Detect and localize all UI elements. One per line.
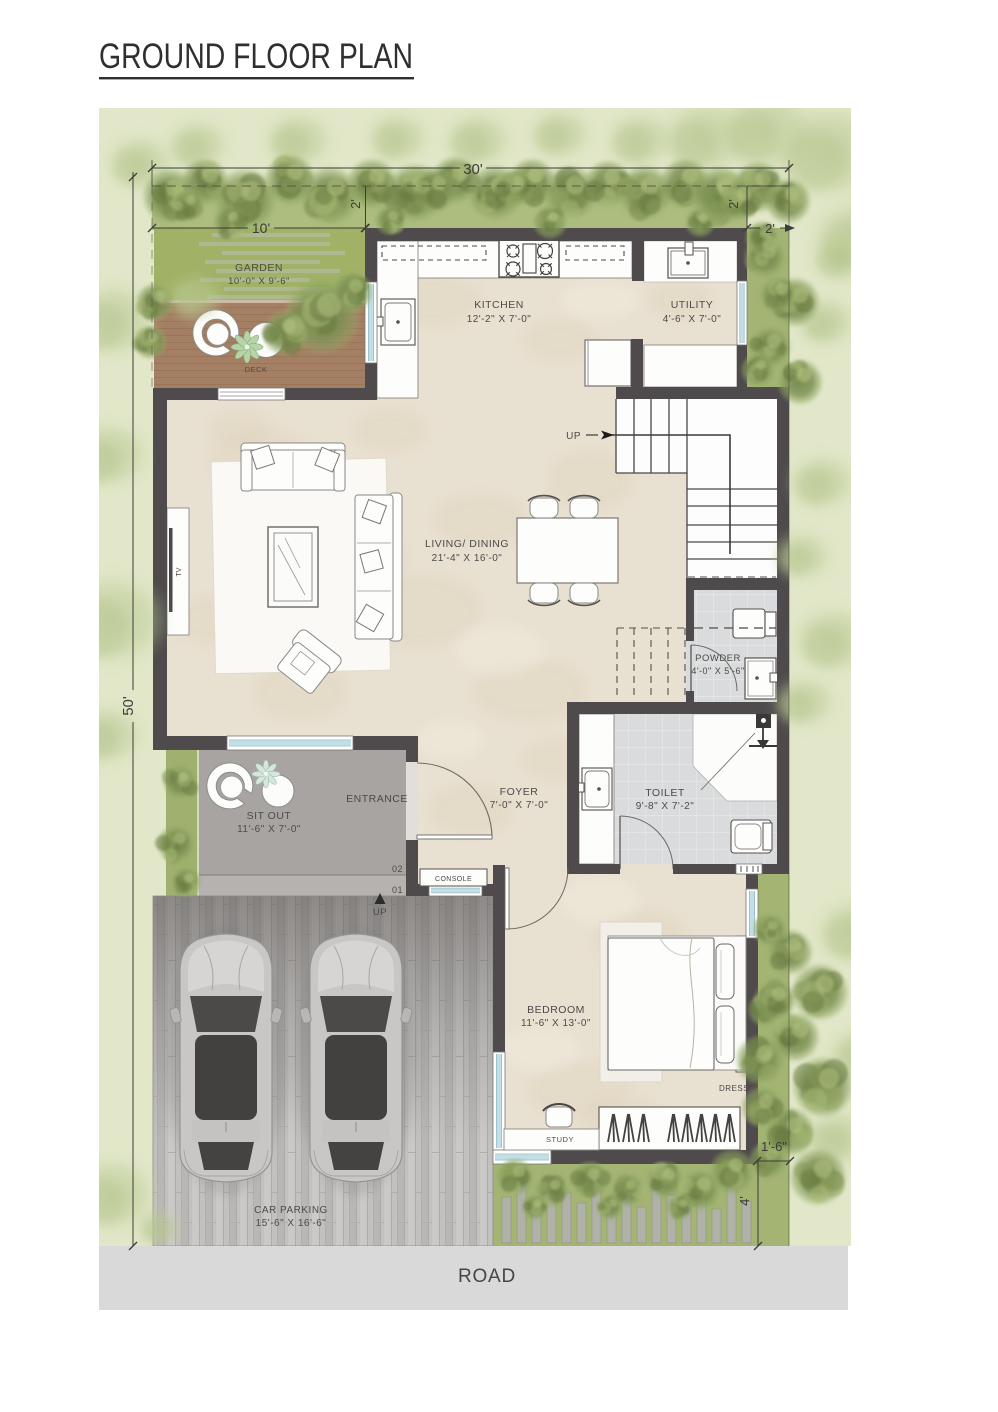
svg-text:POWDER: POWDER xyxy=(695,653,741,664)
svg-text:GARDEN: GARDEN xyxy=(235,262,283,274)
svg-text:STUDY: STUDY xyxy=(546,1135,574,1144)
svg-text:ROAD: ROAD xyxy=(458,1266,516,1287)
svg-text:2': 2' xyxy=(348,199,363,209)
svg-text:UP: UP xyxy=(373,907,387,918)
svg-text:50': 50' xyxy=(120,696,137,716)
svg-text:4'-6" X 7'-0": 4'-6" X 7'-0" xyxy=(663,314,722,325)
svg-text:30': 30' xyxy=(463,161,483,178)
svg-text:BEDROOM: BEDROOM xyxy=(527,1004,585,1016)
svg-text:4'-0" X 5'-6": 4'-0" X 5'-6" xyxy=(691,666,744,676)
svg-text:11'-6" X 13'-0": 11'-6" X 13'-0" xyxy=(521,1018,591,1029)
svg-text:ENTRANCE: ENTRANCE xyxy=(346,793,408,805)
svg-text:UTILITY: UTILITY xyxy=(671,299,714,311)
svg-text:7'-0" X 7'-0": 7'-0" X 7'-0" xyxy=(490,800,549,811)
svg-text:4': 4' xyxy=(737,1196,752,1206)
svg-text:12'-2" X 7'-0": 12'-2" X 7'-0" xyxy=(467,314,532,325)
svg-text:UP: UP xyxy=(566,431,581,442)
svg-text:01: 01 xyxy=(392,885,403,895)
svg-text:CAR PARKING: CAR PARKING xyxy=(254,1205,328,1216)
svg-text:TV: TV xyxy=(176,567,183,576)
svg-text:KITCHEN: KITCHEN xyxy=(474,299,524,311)
svg-text:21'-4" X 16'-0": 21'-4" X 16'-0" xyxy=(432,553,503,564)
svg-text:TOILET: TOILET xyxy=(645,787,685,799)
svg-text:1'-6": 1'-6" xyxy=(761,1139,787,1154)
svg-text:2': 2' xyxy=(726,199,741,209)
svg-text:DRESS: DRESS xyxy=(719,1084,749,1093)
svg-text:9'-8" X 7'-2": 9'-8" X 7'-2" xyxy=(636,801,695,812)
svg-text:10'-0" X 9'-6": 10'-0" X 9'-6" xyxy=(228,276,290,287)
svg-text:DECK: DECK xyxy=(245,365,268,374)
svg-text:10': 10' xyxy=(252,220,270,236)
svg-text:FOYER: FOYER xyxy=(500,786,539,798)
svg-text:02: 02 xyxy=(392,864,403,874)
svg-text:2': 2' xyxy=(765,221,775,236)
svg-text:LIVING/ DINING: LIVING/ DINING xyxy=(425,538,509,550)
svg-text:CONSOLE: CONSOLE xyxy=(435,876,472,883)
svg-text:11'-6" X 7'-0": 11'-6" X 7'-0" xyxy=(237,824,301,835)
svg-text:15'-6" X 16'-6": 15'-6" X 16'-6" xyxy=(256,1218,327,1229)
svg-text:SIT OUT: SIT OUT xyxy=(247,810,292,822)
svg-text:GROUND FLOOR PLAN: GROUND FLOOR PLAN xyxy=(99,37,413,76)
